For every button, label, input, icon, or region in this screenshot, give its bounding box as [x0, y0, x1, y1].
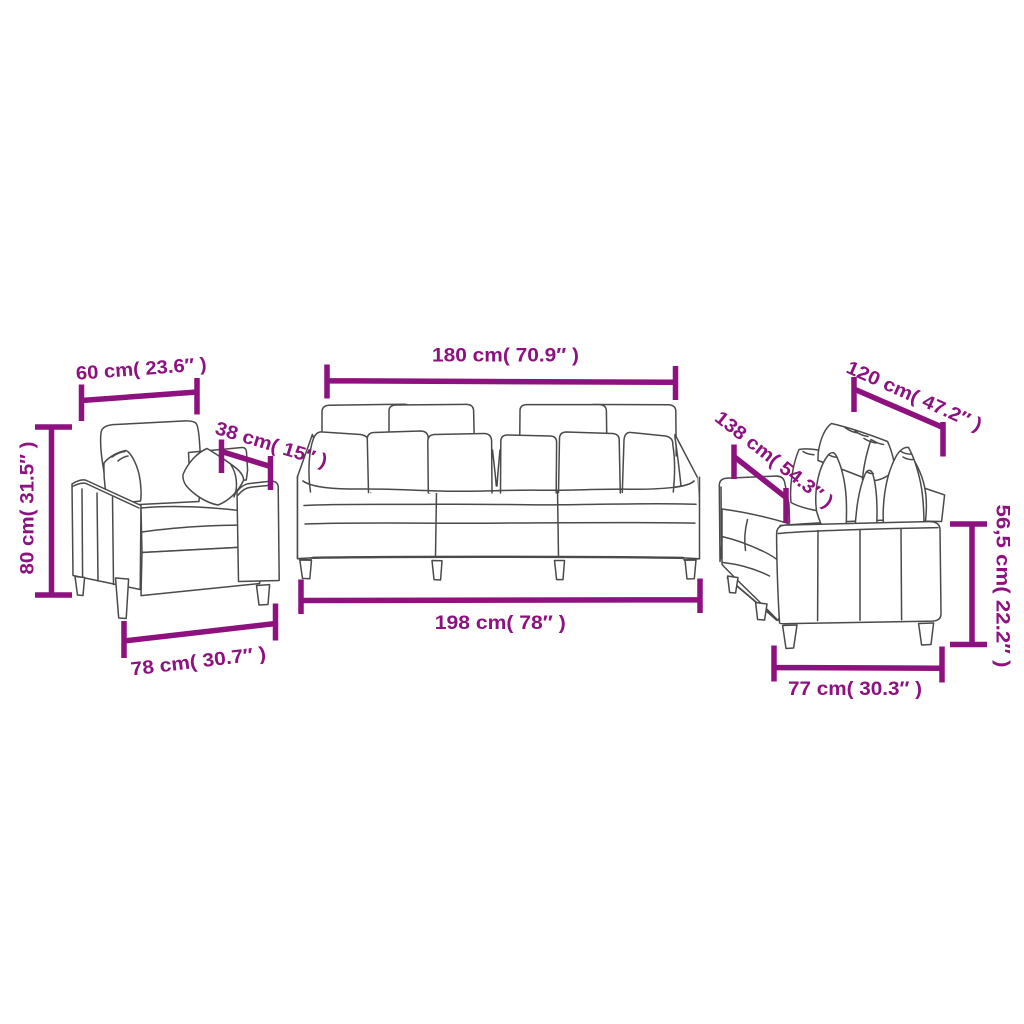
svg-text:198 cm( 78″ ): 198 cm( 78″ ) [435, 613, 566, 634]
svg-text:77 cm( 30.3″ ): 77 cm( 30.3″ ) [788, 679, 922, 700]
svg-text:180 cm( 70.9″ ): 180 cm( 70.9″ ) [432, 345, 579, 366]
svg-text:80 cm( 31.5″ ): 80 cm( 31.5″ ) [18, 442, 39, 575]
svg-text:56,5 cm( 22.2″ ): 56,5 cm( 22.2″ ) [992, 505, 1013, 668]
